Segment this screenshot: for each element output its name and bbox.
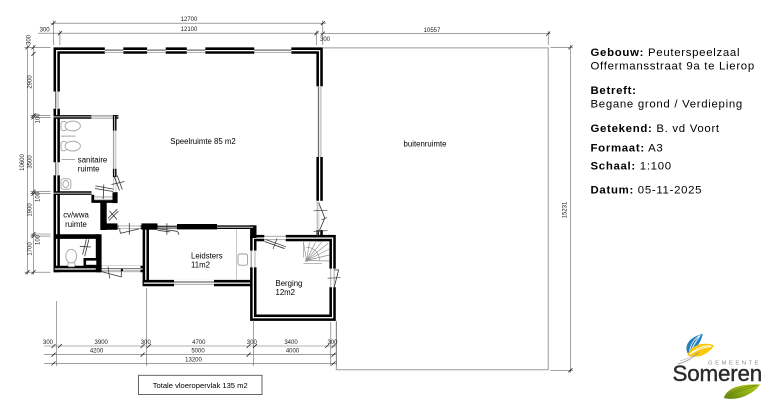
svg-text:Speelruimte 85 m2: Speelruimte 85 m2 [170,137,235,146]
svg-text:sanitaire: sanitaire [78,156,107,165]
svg-text:300: 300 [43,340,54,346]
svg-text:Leidsters: Leidsters [191,252,223,261]
svg-text:15231: 15231 [563,201,569,218]
svg-text:Gebouw: Peuterspeelzaal: Gebouw: Peuterspeelzaal [591,47,741,59]
svg-text:Getekend: B. vd Voort: Getekend: B. vd Voort [591,123,720,135]
svg-text:4700: 4700 [192,340,206,346]
svg-text:100: 100 [36,234,42,245]
svg-text:300: 300 [40,28,51,34]
svg-text:300: 300 [327,340,338,346]
svg-text:2900: 2900 [28,75,34,89]
svg-text:3400: 3400 [284,340,298,346]
svg-text:1900: 1900 [28,203,34,217]
svg-text:10557: 10557 [424,28,441,34]
svg-text:Berging: Berging [276,279,303,288]
svg-text:100: 100 [36,191,42,202]
svg-text:4000: 4000 [286,349,300,355]
svg-text:Offermansstraat 9a te Lierop: Offermansstraat 9a te Lierop [591,61,755,73]
svg-text:100: 100 [36,113,42,124]
svg-text:13200: 13200 [185,357,202,363]
svg-text:Betreft:: Betreft: [591,85,637,97]
svg-text:3500: 3500 [28,155,34,169]
svg-text:12700: 12700 [181,17,198,23]
svg-text:ruimte: ruimte [65,220,87,229]
svg-text:300: 300 [247,340,258,346]
svg-text:cv/wwa: cv/wwa [63,211,89,220]
svg-text:Totale vloeropervlak 135 m2: Totale vloeropervlak 135 m2 [153,381,248,390]
svg-text:12m2: 12m2 [276,288,296,297]
svg-text:5000: 5000 [191,349,205,355]
svg-text:300: 300 [141,340,152,346]
svg-text:Formaat: A3: Formaat: A3 [591,143,664,155]
svg-text:Begane grond / Verdieping: Begane grond / Verdieping [591,99,743,111]
svg-text:Schaal: 1:100: Schaal: 1:100 [591,161,672,173]
svg-text:3900: 3900 [95,340,109,346]
svg-text:Datum: 05-11-2025: Datum: 05-11-2025 [591,185,703,197]
svg-text:10600: 10600 [20,153,26,170]
svg-text:ruimte: ruimte [78,165,100,174]
svg-text:300: 300 [320,37,331,43]
svg-text:4200: 4200 [90,349,104,355]
svg-text:300: 300 [27,34,33,45]
svg-text:buitenruimte: buitenruimte [404,140,447,149]
svg-text:1700: 1700 [28,242,34,256]
svg-text:12100: 12100 [181,27,198,33]
svg-text:11m2: 11m2 [191,261,210,270]
svg-text:Someren: Someren [673,361,762,386]
